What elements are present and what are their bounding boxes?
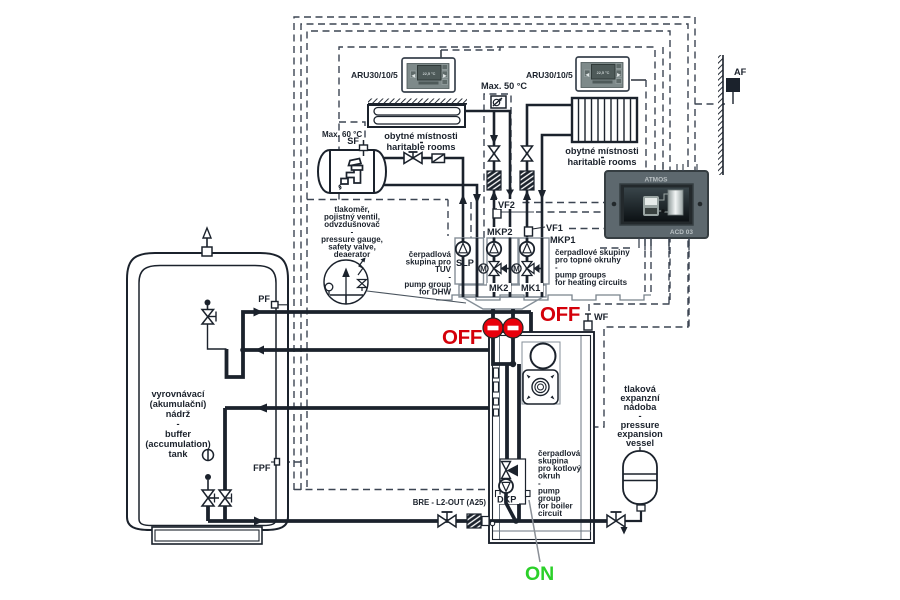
svg-text:ON: ON (525, 563, 554, 585)
svg-text:FPF: FPF (253, 463, 271, 473)
svg-text:◀: ◀ (585, 72, 590, 77)
svg-text:PF: PF (258, 294, 270, 304)
svg-text:okruh: okruh (538, 472, 560, 481)
svg-text:haritable rooms: haritable rooms (568, 157, 637, 167)
svg-text:buffer: buffer (165, 429, 191, 439)
svg-text:pro topné okruhy: pro topné okruhy (555, 256, 621, 265)
svg-text:ATMOS: ATMOS (645, 177, 669, 184)
svg-text:WF: WF (594, 312, 609, 322)
svg-text:Max. 50 °C: Max. 50 °C (481, 81, 527, 91)
svg-text:SLP: SLP (456, 258, 474, 268)
svg-text:deaerator: deaerator (334, 250, 370, 259)
svg-text:BRE - L2-OUT (A25): BRE - L2-OUT (A25) (413, 498, 487, 507)
svg-text:tank: tank (169, 449, 189, 459)
svg-text:MKP2: MKP2 (487, 227, 513, 237)
svg-text:vyrovnávací: vyrovnávací (151, 389, 205, 399)
svg-text:22,5 °C: 22,5 °C (423, 72, 436, 76)
svg-text:OFF: OFF (540, 303, 580, 326)
svg-text:obytné místnosti: obytné místnosti (565, 146, 639, 156)
svg-text:M: M (480, 265, 487, 274)
svg-text:22,5 °C: 22,5 °C (597, 71, 610, 75)
svg-text:-: - (176, 419, 179, 429)
svg-text:(accumulation): (accumulation) (145, 439, 210, 449)
svg-text:ARU30/10/5: ARU30/10/5 (526, 70, 573, 80)
svg-text:M: M (513, 265, 520, 274)
svg-text:obytné místnosti: obytné místnosti (384, 131, 458, 141)
svg-text:OFF: OFF (442, 326, 482, 349)
svg-text:for heating circuits: for heating circuits (555, 278, 628, 287)
svg-text:for DHW: for DHW (419, 288, 451, 297)
svg-text:VF2: VF2 (498, 200, 515, 210)
svg-text:haritable rooms: haritable rooms (387, 142, 456, 152)
svg-text:(akumulační): (akumulační) (150, 399, 207, 409)
svg-text:MK2: MK2 (489, 283, 508, 293)
svg-text:vessel: vessel (626, 438, 654, 448)
svg-text:◀: ◀ (411, 73, 416, 78)
svg-text:MK1: MK1 (521, 283, 540, 293)
svg-text:Max. 60 °C: Max. 60 °C (322, 130, 362, 139)
svg-text:nádrž: nádrž (166, 409, 191, 419)
svg-text:ARU30/10/5: ARU30/10/5 (351, 70, 398, 80)
svg-text:VF1: VF1 (546, 223, 563, 233)
svg-text:AF: AF (734, 67, 747, 77)
svg-text:MKP1: MKP1 (550, 235, 576, 245)
svg-text:circuit: circuit (538, 509, 562, 518)
svg-text:ACD 03: ACD 03 (670, 229, 694, 236)
